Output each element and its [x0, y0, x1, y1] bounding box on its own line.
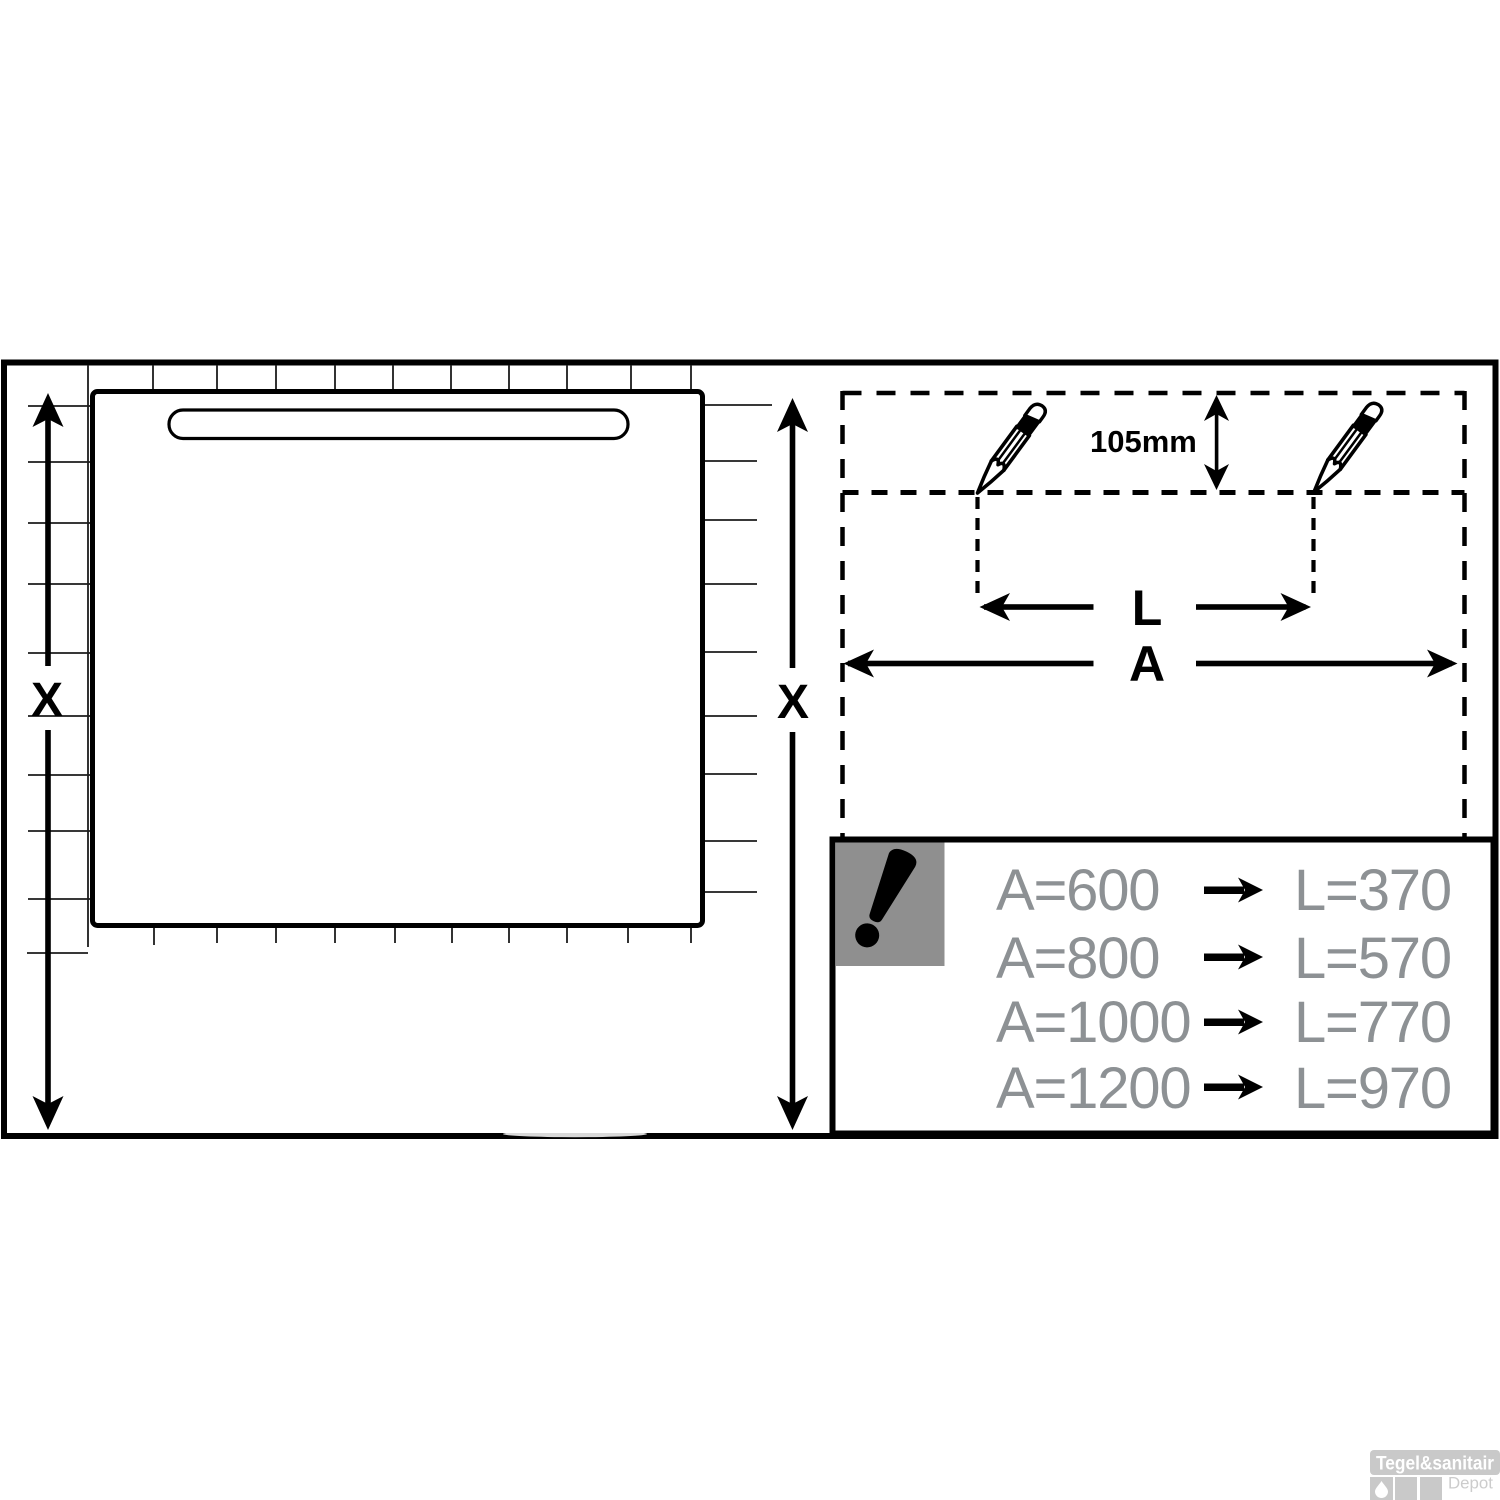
svg-text:A=1000: A=1000	[996, 990, 1190, 1055]
svg-text:A=1200: A=1200	[996, 1056, 1190, 1121]
svg-text:L=970: L=970	[1294, 1056, 1451, 1121]
svg-text:105mm: 105mm	[1090, 424, 1197, 459]
svg-text:X: X	[31, 674, 63, 727]
svg-text:A=600: A=600	[996, 858, 1159, 923]
svg-text:L=370: L=370	[1294, 858, 1451, 923]
svg-text:A=800: A=800	[996, 926, 1159, 991]
svg-text:Tegel&sanitair: Tegel&sanitair	[1376, 1453, 1494, 1475]
svg-text:L=570: L=570	[1294, 926, 1451, 991]
svg-text:L=770: L=770	[1294, 990, 1451, 1055]
svg-text:Depot: Depot	[1448, 1474, 1493, 1493]
svg-text:L: L	[1132, 580, 1163, 636]
svg-text:X: X	[777, 676, 809, 729]
svg-text:A: A	[1129, 636, 1165, 692]
